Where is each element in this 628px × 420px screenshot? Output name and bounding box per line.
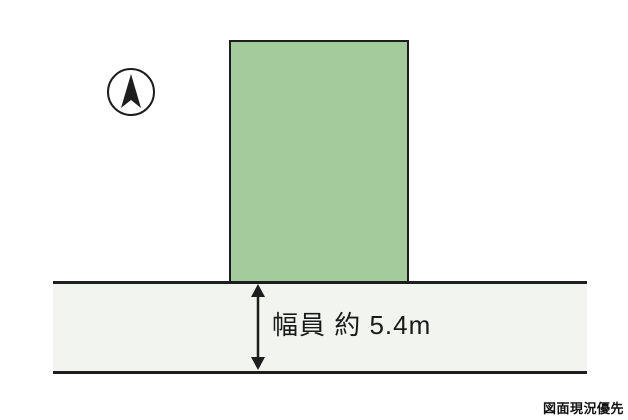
- footer-note: 図面現況優先: [543, 398, 624, 417]
- north-arrow-icon: [109, 70, 153, 114]
- north-arrow-compass: [107, 68, 155, 116]
- land-parcel: [229, 40, 409, 283]
- site-plan-diagram: 幅員 約 5.4m 図面現況優先: [0, 0, 628, 420]
- road-width-label: 幅員 約 5.4m: [272, 311, 431, 340]
- road-width-arrow-icon: [249, 284, 267, 370]
